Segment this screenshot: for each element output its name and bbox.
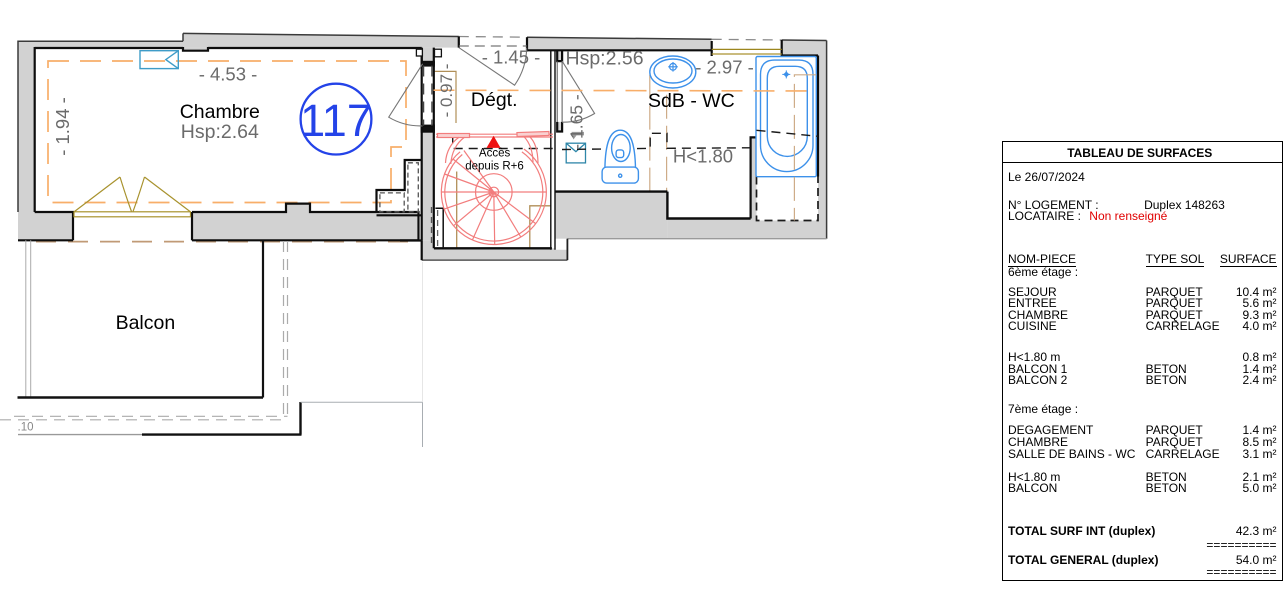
svg-text:117: 117 xyxy=(300,95,372,146)
svg-text:Hsp:2.56: Hsp:2.56 xyxy=(566,48,644,70)
svg-text:H<1.80: H<1.80 xyxy=(673,146,733,167)
svg-text:Hsp:2.64: Hsp:2.64 xyxy=(181,121,259,143)
svg-text:- 1.94 -: - 1.94 - xyxy=(52,97,73,156)
svg-text:SdB - WC: SdB - WC xyxy=(648,90,735,112)
svg-text:- 1.45 -: - 1.45 - xyxy=(482,47,541,68)
svg-text:- 2.97 -: - 2.97 - xyxy=(695,57,754,78)
svg-text:.10: .10 xyxy=(18,422,34,434)
svg-text:Chambre: Chambre xyxy=(180,101,260,123)
svg-text:- 4.53 -: - 4.53 - xyxy=(199,63,258,84)
svg-text:depuis R+6: depuis R+6 xyxy=(465,161,524,173)
svg-text:Balcon: Balcon xyxy=(116,312,176,334)
svg-text:- 0.97 -: - 0.97 - xyxy=(437,64,456,118)
svg-text:Dégt.: Dégt. xyxy=(471,89,518,111)
svg-text:- 1.65 -: - 1.65 - xyxy=(567,94,587,150)
svg-text:Accès: Accès xyxy=(479,148,511,160)
